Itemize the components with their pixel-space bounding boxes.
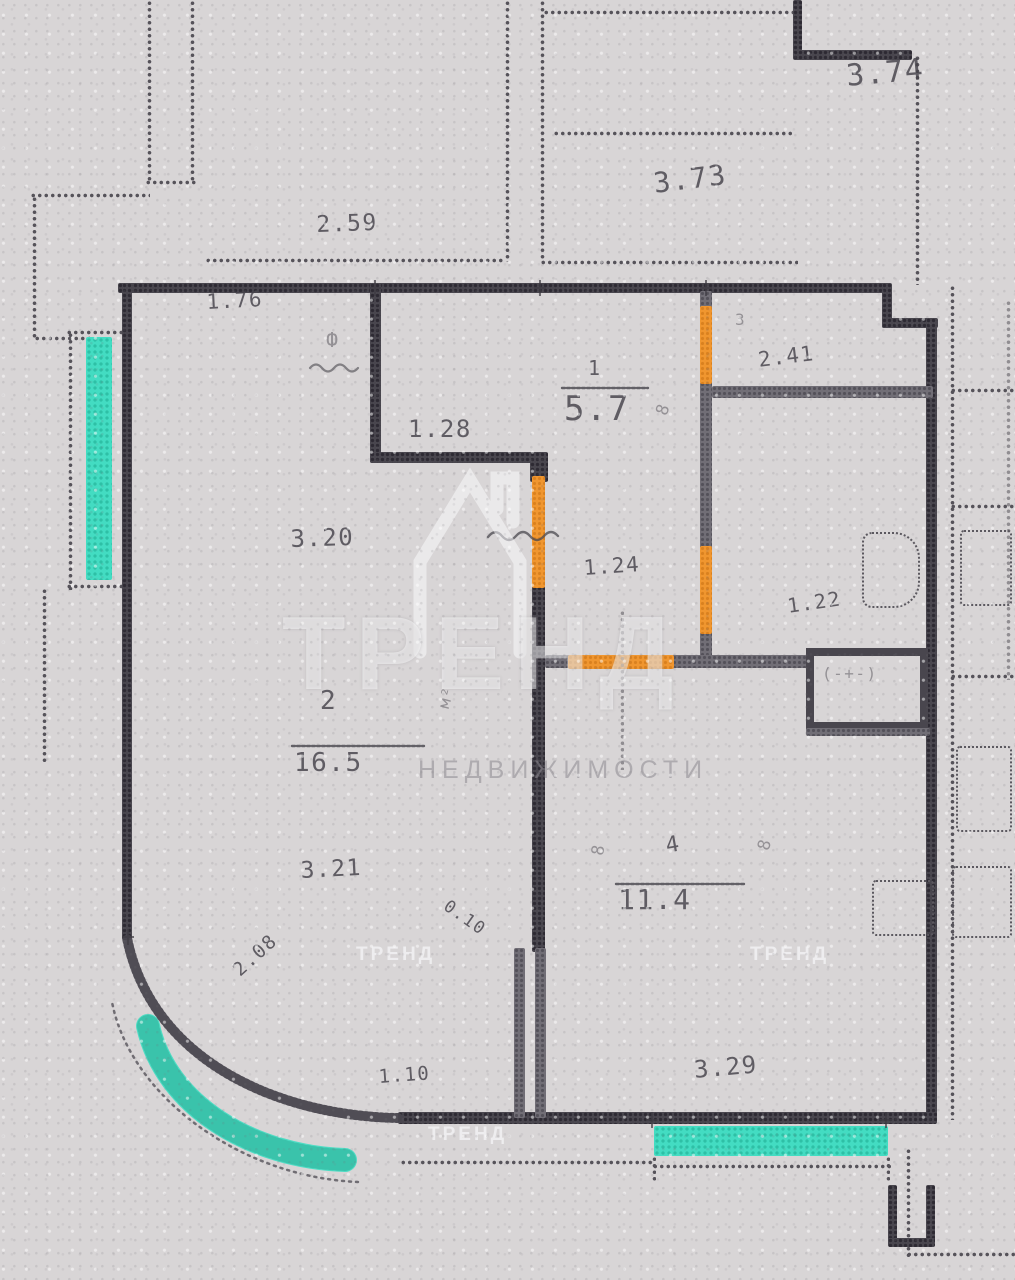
window-frame-tick-l bbox=[652, 1156, 656, 1182]
dim-122: 1.22 bbox=[786, 588, 842, 615]
dim-176: 1.76 bbox=[206, 289, 264, 313]
watermark-tile-3: ТРЕНД bbox=[428, 1124, 507, 1146]
neighbor-pier-left-b bbox=[190, 0, 195, 183]
bath-divider-wall bbox=[712, 386, 933, 398]
vent-shaft-marks: (-+-) bbox=[822, 666, 878, 682]
neighbor-step-top bbox=[30, 193, 150, 198]
right-room-fixture-2 bbox=[956, 746, 1012, 832]
curved-window bbox=[148, 1026, 345, 1160]
neighbor-bottom-pier-c bbox=[888, 1238, 935, 1247]
dim-124: 1.24 bbox=[583, 554, 641, 579]
window-bottom-frame bbox=[652, 1164, 892, 1169]
dim-010: 0.10 bbox=[440, 898, 488, 939]
toilet-fixture bbox=[862, 532, 920, 608]
wc-wall-mid bbox=[700, 382, 712, 550]
neighbor-pier-cap bbox=[145, 180, 197, 185]
riser-glyph: Ф bbox=[326, 330, 340, 350]
unit-bottom-wall bbox=[398, 1112, 937, 1124]
door-wc-top bbox=[700, 306, 712, 384]
bedroom-cabinet bbox=[872, 880, 934, 936]
neighbor-top-edge bbox=[543, 10, 795, 15]
neighbor-top-shelf bbox=[553, 131, 793, 136]
vent-shaft bbox=[806, 648, 928, 730]
duct-bar-right bbox=[535, 948, 546, 1118]
room-1-area: 5.7 bbox=[564, 392, 630, 426]
neighbor-bottom-pier-a bbox=[888, 1185, 897, 1245]
dim-320: 3.20 bbox=[290, 525, 355, 551]
window-top-cap bbox=[66, 330, 128, 335]
dim-squiggle-hall bbox=[488, 532, 558, 540]
hall-wall-vertical bbox=[370, 283, 381, 463]
bedroom-glyph-right: 8 bbox=[756, 837, 775, 853]
dim-208: 2.08 bbox=[230, 931, 281, 980]
neighbor-top-mid-right bbox=[505, 0, 510, 262]
dim-110: 1.10 bbox=[378, 1064, 431, 1087]
door-bath bbox=[700, 546, 712, 634]
window-frame-tick-r bbox=[886, 1156, 890, 1182]
neighbor-top-wall-b bbox=[540, 260, 798, 265]
room-2-area: 16.5 bbox=[294, 750, 363, 776]
neighbor-top-mid-left bbox=[540, 0, 545, 262]
right-edge-dotted bbox=[1006, 300, 1011, 680]
dim-329: 3.29 bbox=[693, 1052, 759, 1081]
corridor-dotted-wall bbox=[950, 285, 955, 1120]
watermark-tile-2: ТРЕНД bbox=[750, 944, 829, 966]
neighbor-right-dotted bbox=[915, 55, 920, 285]
vent-shadow bbox=[806, 728, 930, 736]
room-4-number: 4 bbox=[664, 833, 682, 857]
door-living bbox=[532, 476, 545, 588]
curved-window-dots bbox=[148, 1026, 345, 1160]
duct-bar-left bbox=[514, 948, 525, 1118]
bay-lower-edge bbox=[42, 588, 47, 763]
neighbor-bottom-pier-b bbox=[926, 1185, 935, 1245]
door-width-glyph: 8 bbox=[654, 401, 674, 418]
right-room-fixture-1 bbox=[960, 530, 1012, 606]
neighbor-bottom-dotted-h bbox=[906, 1252, 1015, 1257]
neighbor-step-side bbox=[32, 196, 37, 340]
dim-374: 3.74 bbox=[845, 55, 926, 92]
bay-top-cap bbox=[34, 336, 90, 341]
dim-squiggle-riser bbox=[310, 365, 358, 372]
watermark-brand-text: ТРЕНД bbox=[282, 602, 683, 706]
dim-241: 2.41 bbox=[757, 343, 816, 371]
floor-plan-scan: 3.743.732.591.76Ф1.2815.7832.411.241.223… bbox=[0, 0, 1015, 1280]
neighbor-top-wall-a bbox=[205, 258, 505, 263]
unit-left-wall bbox=[122, 283, 132, 940]
dim-373: 3.73 bbox=[652, 161, 728, 198]
window-bottom-cap bbox=[66, 584, 128, 589]
right-room-fixture-3 bbox=[952, 866, 1012, 938]
hall-bottom-right bbox=[672, 655, 808, 668]
bay-outer-edge bbox=[68, 332, 73, 590]
room-3-number: 3 bbox=[735, 312, 746, 328]
room-4-area: 11.4 bbox=[618, 886, 691, 914]
balcony-edge-left bbox=[400, 1160, 655, 1165]
window-bottom bbox=[654, 1126, 888, 1156]
watermark-tile-1: ТРЕНД bbox=[356, 944, 435, 966]
dim-321: 3.21 bbox=[300, 857, 363, 883]
watermark-caption-text: НЕДВИЖИМОСТИ bbox=[418, 756, 708, 785]
hall-wall-horizontal bbox=[370, 452, 545, 463]
bedroom-glyph-left: 8 bbox=[590, 842, 609, 857]
dim-128: 1.28 bbox=[408, 417, 472, 441]
window-left bbox=[86, 337, 112, 580]
dim-259: 2.59 bbox=[316, 212, 378, 237]
room-1-number: 1 bbox=[588, 358, 602, 378]
outer-dotted-arc bbox=[112, 1002, 358, 1182]
neighbor-pier-left-a bbox=[147, 0, 152, 183]
